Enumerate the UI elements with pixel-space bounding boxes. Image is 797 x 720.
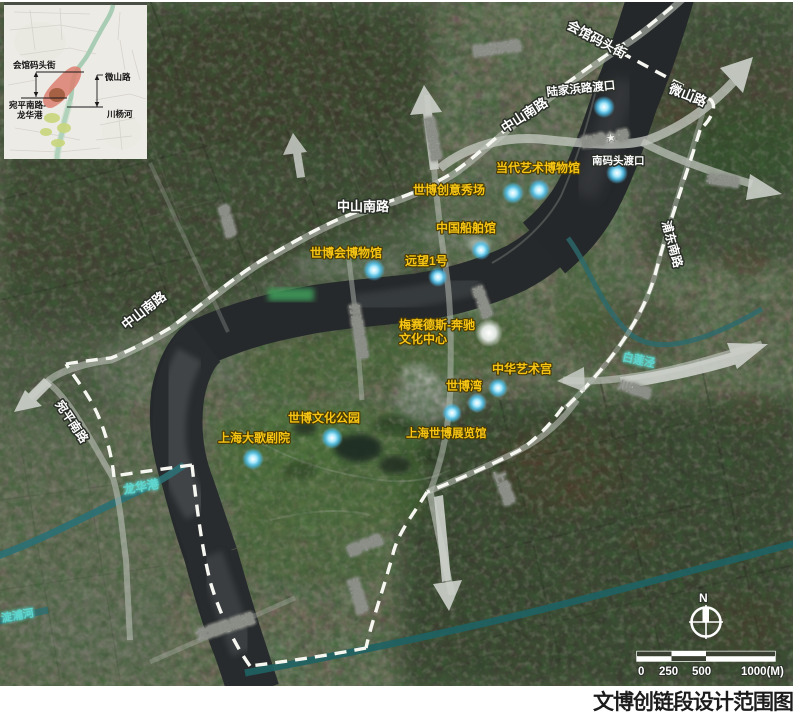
svg-text:500: 500 (692, 666, 711, 678)
svg-text:中华艺术宫: 中华艺术宫 (492, 361, 552, 376)
svg-text:250: 250 (659, 666, 678, 678)
svg-text:宛平南路-: 宛平南路- (8, 100, 46, 110)
svg-text:上海大歌剧院: 上海大歌剧院 (218, 430, 290, 445)
svg-text:1000(M): 1000(M) (741, 666, 784, 678)
svg-text:微山路: 微山路 (104, 72, 131, 82)
svg-text:N: N (699, 591, 708, 605)
svg-text:中山南路: 中山南路 (337, 199, 390, 214)
svg-text:龙华港: 龙华港 (16, 110, 43, 120)
svg-text:世博会博物馆: 世博会博物馆 (310, 245, 382, 260)
svg-text:世博文化公园: 世博文化公园 (288, 410, 360, 425)
svg-text:文化中心: 文化中心 (399, 331, 447, 346)
svg-text:远望1号: 远望1号 (405, 253, 448, 268)
svg-text:中国船舶馆: 中国船舶馆 (436, 220, 496, 235)
svg-text:世博创意秀场: 世博创意秀场 (413, 182, 485, 197)
svg-text:川杨河: 川杨河 (106, 109, 133, 119)
svg-text:梅赛德斯-奔驰: 梅赛德斯-奔驰 (399, 317, 475, 332)
svg-text:当代艺术博物馆: 当代艺术博物馆 (496, 160, 580, 175)
svg-text:世博湾: 世博湾 (446, 378, 482, 393)
svg-text:会馆码头街: 会馆码头街 (12, 60, 56, 70)
svg-text:文博创链段设计范围图: 文博创链段设计范围图 (593, 690, 793, 714)
svg-text:上海世博展览馆: 上海世博展览馆 (406, 426, 487, 440)
svg-text:0: 0 (638, 666, 644, 678)
svg-text:南码头渡口: 南码头渡口 (592, 154, 645, 167)
